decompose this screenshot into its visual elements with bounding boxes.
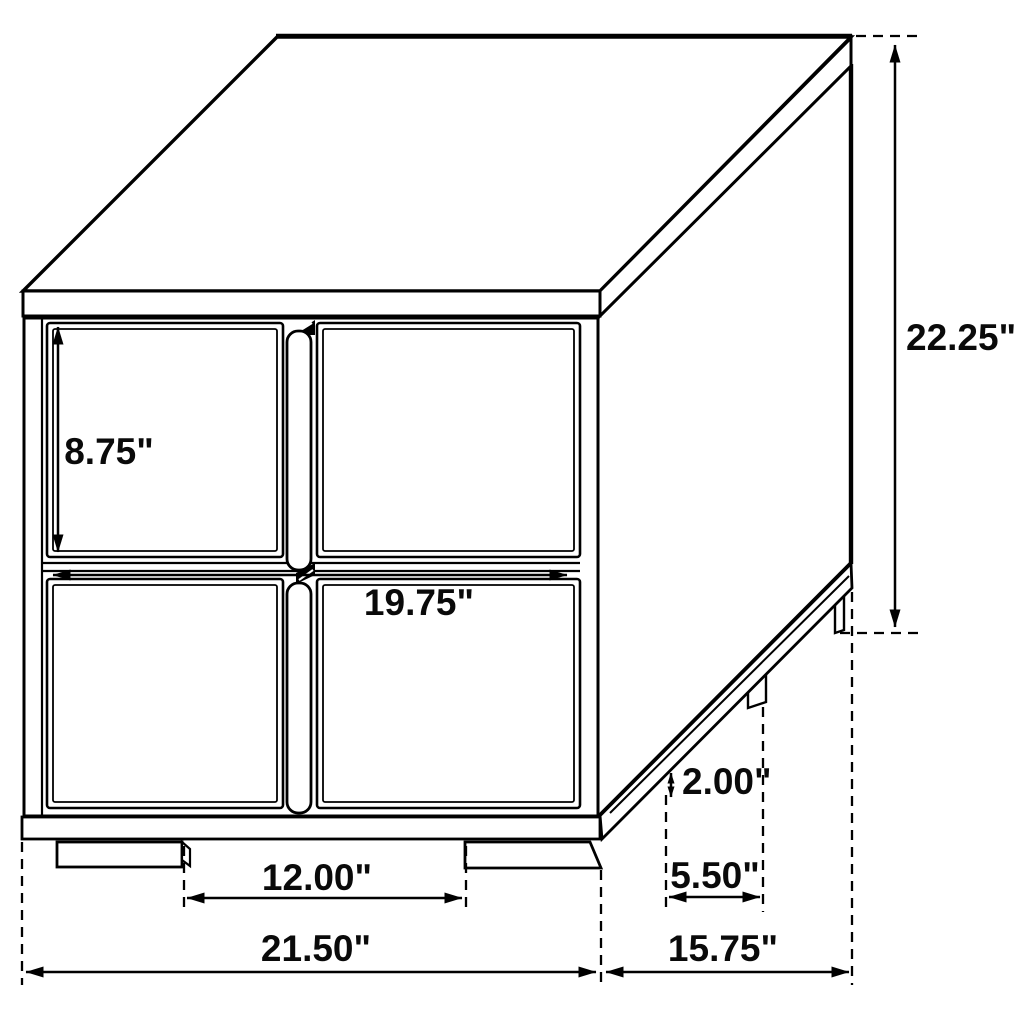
top-panel-front-edge — [23, 291, 600, 316]
dim-overall-height-label: 22.25" — [906, 317, 1016, 358]
bottom-drawer-handle — [287, 583, 311, 813]
dim-leg-height: 2.00" — [671, 761, 772, 802]
front-plinth — [22, 817, 600, 839]
dim-overall-depth-label: 15.75" — [668, 928, 778, 969]
top-drawer-right-panel — [317, 323, 580, 557]
dim-front-leg-spacing-label: 12.00" — [262, 857, 372, 898]
front-left-leg — [57, 842, 182, 867]
bottom-drawer-left-panel — [47, 579, 283, 808]
dim-side-leg-spacing-label: 5.50" — [670, 855, 760, 896]
dim-leg-height-label: 2.00" — [682, 761, 772, 802]
front-right-leg — [465, 842, 601, 868]
dim-overall-width-label: 21.50" — [261, 928, 371, 969]
top-drawer-handle — [287, 331, 311, 570]
dim-drawer-front-width-label: 19.75" — [364, 582, 474, 623]
dim-drawer-front-height-label: 8.75" — [64, 431, 154, 472]
nightstand-dimension-diagram: 8.75" 19.75" 22.25" 12.00" 21.50" 15.75"… — [0, 0, 1024, 1024]
dim-side-leg-spacing: 5.50" — [669, 855, 760, 897]
diagram-canvas: 8.75" 19.75" 22.25" 12.00" 21.50" 15.75"… — [0, 0, 1024, 1024]
